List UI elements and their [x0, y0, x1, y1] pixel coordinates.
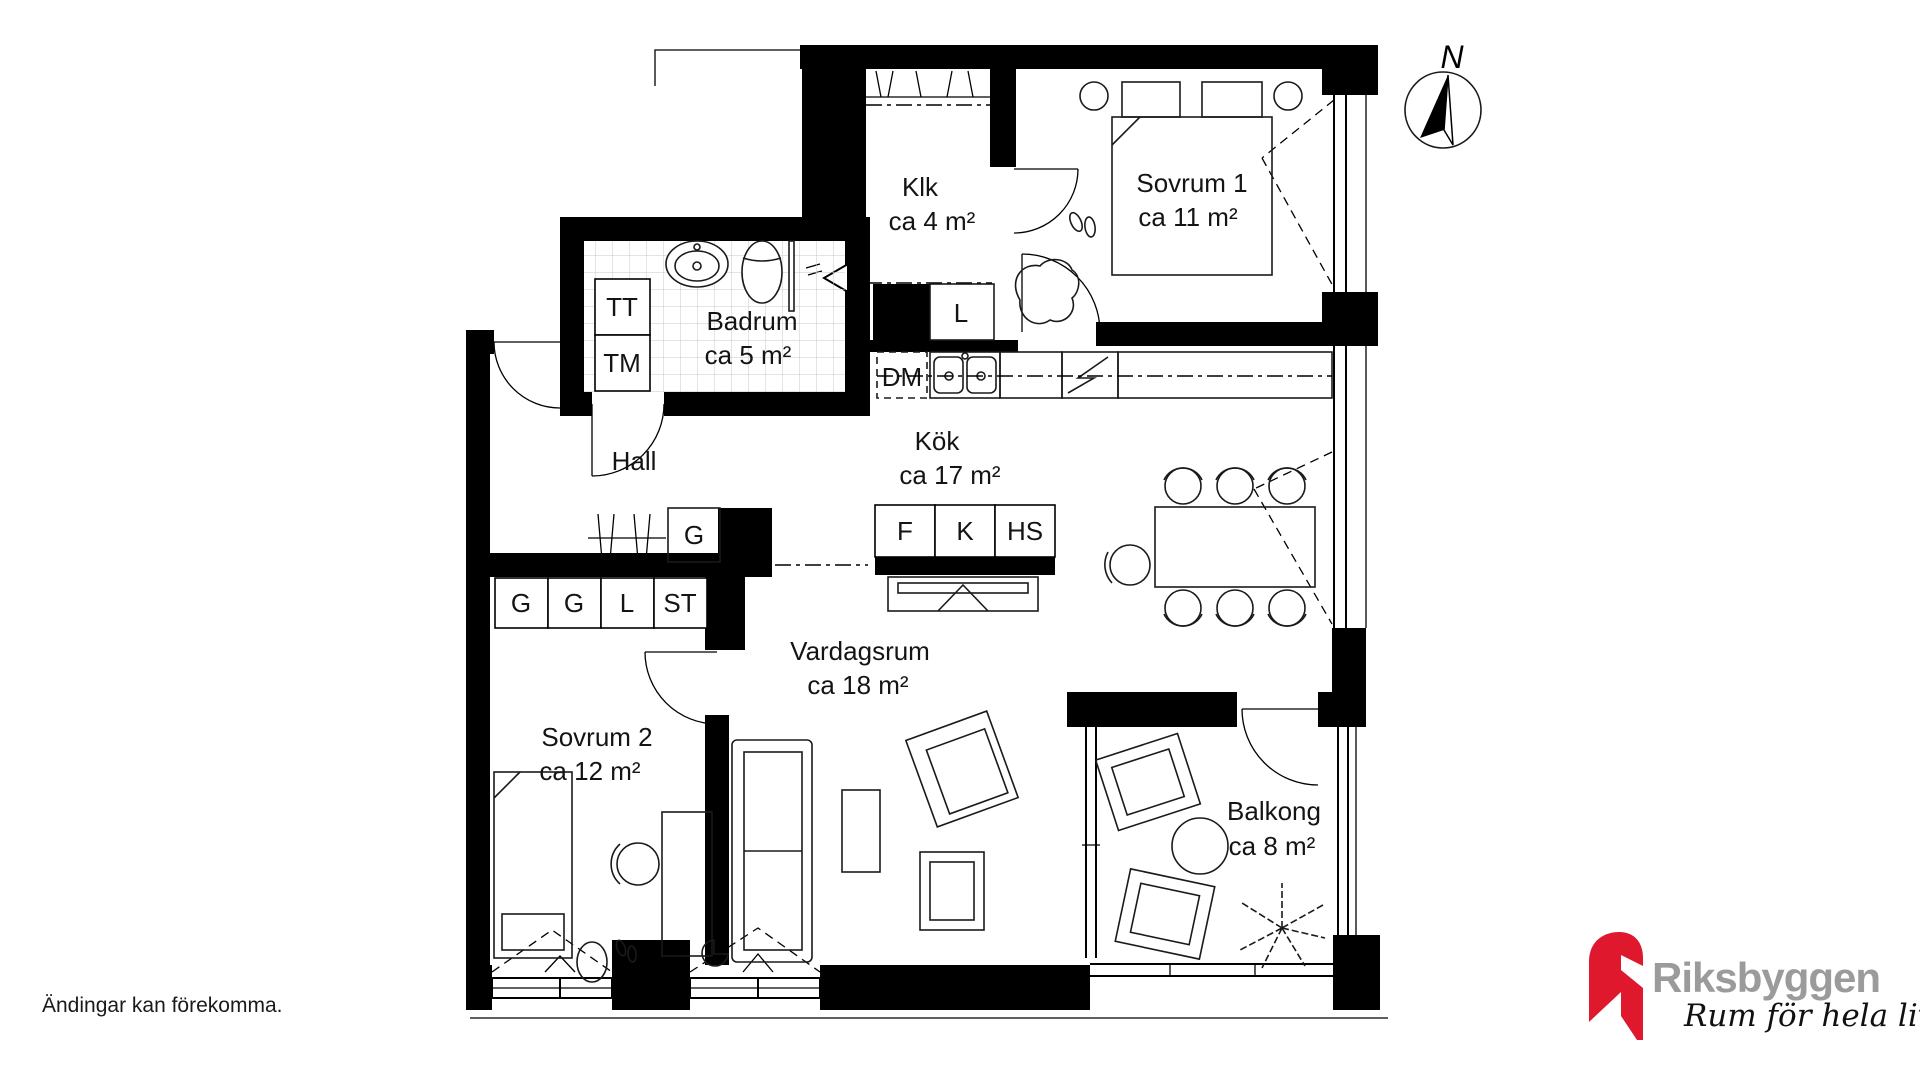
vardagsrum-name: Vardagsrum [790, 636, 930, 666]
wardrobe-2-label: G [564, 588, 584, 618]
sideboard-icon [888, 577, 1038, 611]
room-sovrum1: Sovrum 1 ca 11 m² [1016, 82, 1302, 324]
single-bed-icon [494, 772, 572, 958]
compass-north-label: N [1440, 39, 1464, 75]
freezer-label: K [956, 516, 974, 546]
bedside-table-icon-2 [1274, 82, 1302, 110]
room-balkong: Balkong ca 8 m² [1096, 734, 1325, 968]
riksbyggen-logo: Riksbyggen Rum för hela livet [1589, 932, 1920, 1040]
riksbyggen-mark-icon [1589, 932, 1643, 1040]
sovrum1-name: Sovrum 1 [1136, 168, 1247, 198]
room-vardagsrum: Vardagsrum ca 18 m² [702, 636, 1018, 966]
hall-wardrobe-label: G [684, 520, 704, 550]
dining-table-icon [1105, 468, 1315, 626]
cleaning-closet-label: ST [663, 588, 696, 618]
shower-rail-icon [789, 241, 794, 311]
sink-unit-icon [930, 352, 1000, 398]
slippers-icon [1067, 211, 1096, 238]
compass: N [1405, 39, 1481, 148]
side-table-icon [920, 852, 984, 930]
toilet-icon [742, 241, 782, 303]
badrum-name: Badrum [706, 306, 797, 336]
sovrum2-area: ca 12 m² [539, 756, 640, 786]
balcony-chair-icon-2 [1115, 869, 1215, 959]
lounge-chair-icon [906, 711, 1018, 827]
dishwasher-label: DM [882, 362, 922, 392]
disclaimer: Ändingar kan förekomma. [42, 994, 282, 1017]
wardrobe-1-label: G [511, 588, 531, 618]
floor-plan-drawing: TT TM Badrum ca 5 m² L Klk ca 4 m² [0, 0, 1920, 1080]
door-balkong [1242, 709, 1318, 785]
room-sovrum2: G G L ST Sovrum 2 ca 12 m² [494, 578, 712, 982]
counter-box [1000, 352, 1062, 398]
coffee-table-icon [842, 790, 880, 872]
washer-label: TM [603, 348, 641, 378]
vardagsrum-area: ca 18 m² [807, 670, 908, 700]
desk-chair-icon [611, 843, 659, 885]
stove-icon [1062, 352, 1118, 398]
kok-name: Kök [915, 426, 961, 456]
stool-icon [577, 942, 607, 982]
riksbyggen-wordmark: Riksbyggen [1652, 954, 1880, 1001]
klk-name: Klk [902, 172, 939, 202]
counter-box-2 [1118, 352, 1332, 398]
linen-closet-label: L [954, 298, 968, 328]
door-sovrum2 [645, 652, 717, 724]
hall-name: Hall [612, 446, 657, 476]
sofa-icon [732, 740, 812, 962]
balcony-table-icon [1172, 818, 1228, 874]
badrum-area: ca 5 m² [705, 340, 792, 370]
sink-icon [666, 241, 728, 287]
dryer-label: TT [606, 292, 638, 322]
closet-l-label: L [620, 588, 634, 618]
sovrum1-area: ca 11 m² [1138, 202, 1238, 232]
floor-plan-page: TT TM Badrum ca 5 m² L Klk ca 4 m² [0, 0, 1920, 1080]
plant-icon [1240, 883, 1325, 968]
balcony-chair-icon [1096, 734, 1201, 831]
tall-cabinet-label: HS [1007, 516, 1043, 546]
room-kok: DM F K HS [875, 352, 1332, 626]
bedside-table-icon [1080, 82, 1108, 110]
balkong-area: ca 8 m² [1229, 831, 1316, 861]
klk-area: ca 4 m² [889, 206, 976, 236]
door-entry [494, 342, 560, 408]
room-badrum: TT TM Badrum ca 5 m² [584, 241, 845, 392]
desk-icon [662, 812, 712, 956]
fridge-label: F [897, 516, 913, 546]
sovrum2-name: Sovrum 2 [541, 722, 652, 752]
door-klk [1014, 169, 1078, 233]
riksbyggen-tagline: Rum för hela livet [1683, 998, 1920, 1034]
balkong-name: Balkong [1227, 796, 1321, 826]
kok-area: ca 17 m² [899, 460, 1000, 490]
